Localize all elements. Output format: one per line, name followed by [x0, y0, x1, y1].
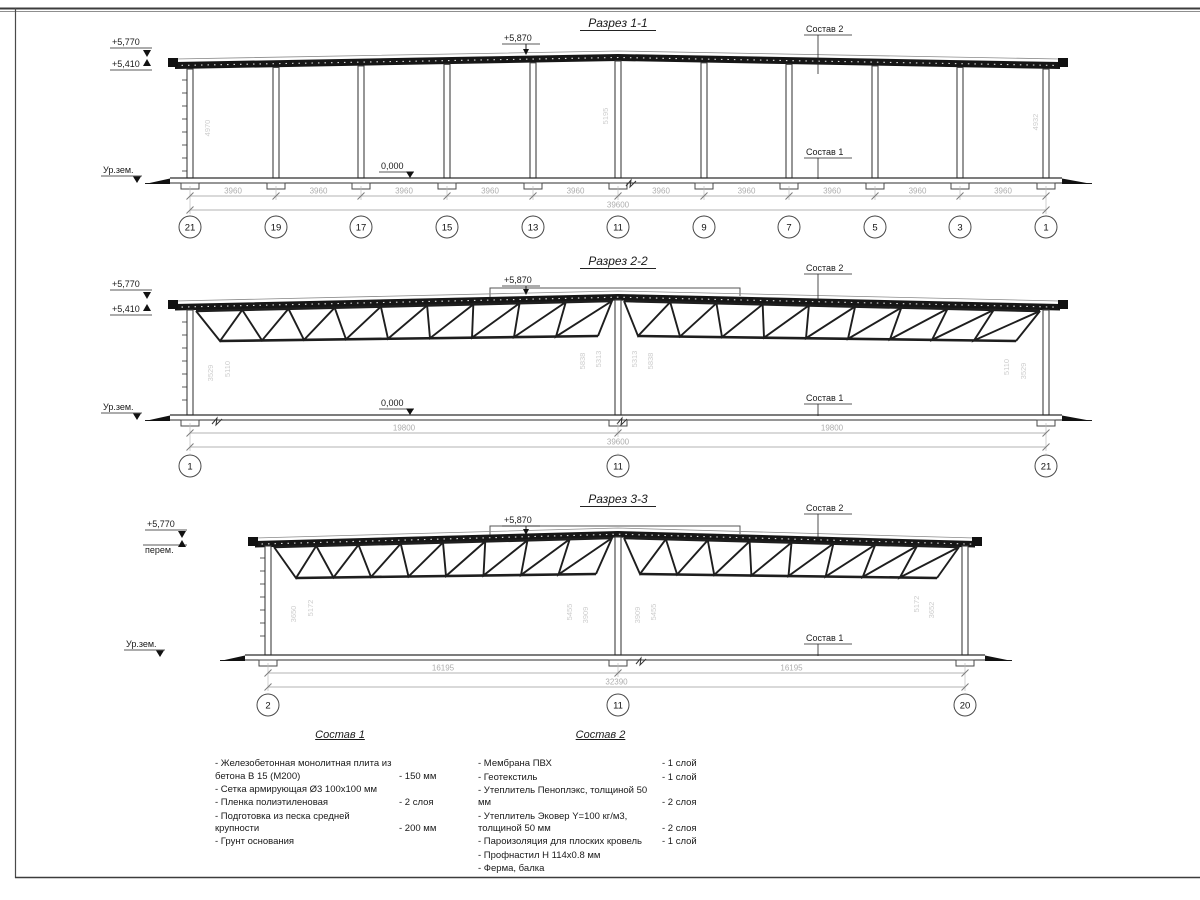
ground-level-label: Ур.зем. [103, 402, 134, 412]
section2-columns [187, 300, 1049, 415]
legend1-title: Состав 1 [250, 728, 430, 742]
legend-item: - Ферма, балка [478, 863, 723, 875]
axis-bubble-label: 11 [613, 462, 623, 473]
section3-footings [259, 660, 974, 666]
axis-bubble-label: 20 [960, 701, 971, 712]
elev-ridge-label: +5,870 [504, 515, 532, 525]
elev-note-label: перем. [145, 545, 174, 555]
height-dim: 5455 [649, 604, 658, 621]
bay-dimension: 3960 [909, 187, 927, 196]
bay-dimension: 3960 [738, 187, 756, 196]
legend-item: - Утеплитель Пеноплэкс, толщиной 50 мм -… [478, 785, 723, 810]
axis-bubble-label: 21 [185, 223, 196, 234]
section2-dimensions: 11121198001980039600 [179, 423, 1057, 477]
bay-dimension: 19800 [393, 424, 416, 433]
legend-item: - Пленка полиэтиленовая - 2 слоя [215, 797, 465, 809]
layer1-callout: Состав 1 [806, 393, 843, 403]
elev-top-label: +5,770 [147, 519, 175, 529]
section2-title: Разрез 2-2 [588, 254, 648, 268]
total-dimension: 32390 [605, 678, 628, 687]
elev-eave-label: +5,410 [112, 59, 140, 69]
axis-bubble-label: 17 [356, 223, 367, 234]
bay-dimension: 16195 [432, 664, 455, 673]
bay-dimension: 3960 [994, 187, 1012, 196]
legend-item: - Профнастил Н 114х0.8 мм [478, 850, 723, 862]
legend-item: - Подготовка из песка средней крупности … [215, 811, 465, 836]
axis-bubble-label: 19 [271, 223, 282, 234]
layer1-callout: Состав 1 [806, 633, 843, 643]
bay-dimension: 3960 [652, 187, 670, 196]
elev-top-label: +5,770 [112, 37, 140, 47]
legend-item: - Мембрана ПВХ - 1 слой [478, 758, 723, 770]
section1-dimensions: 2119171513119753139603960396039603960396… [179, 186, 1057, 238]
bay-dimension: 3960 [310, 187, 328, 196]
section1-wall-ticks [182, 80, 187, 171]
height-dim: 4932 [1031, 114, 1040, 131]
axis-bubble-label: 5 [872, 223, 877, 234]
zero-level-label: 0,000 [381, 398, 404, 408]
legend-sostav-1: Состав 1 - Железобетонная монолитная пли… [215, 728, 465, 850]
section1-columns [187, 61, 1049, 178]
ground-level-label: Ур.зем. [126, 639, 157, 649]
legend-item: - Сетка армирующая Ø3 100х100 мм [215, 784, 465, 796]
height-dim: 3652 [927, 602, 936, 619]
axis-bubble-label: 21 [1041, 462, 1052, 473]
bay-dimension: 19800 [821, 424, 844, 433]
legend-item: - Пароизоляция для плоских кровель - 1 с… [478, 836, 723, 848]
ground-level-label: Ур.зем. [103, 165, 134, 175]
axis-bubble-label: 9 [701, 223, 706, 234]
section3-callouts: Состав 2 Состав 1 [804, 503, 852, 656]
axis-bubble-label: 2 [265, 701, 270, 712]
height-dim: 3529 [206, 365, 215, 382]
height-dim: 5838 [646, 353, 655, 370]
elev-top-label: +5,770 [112, 279, 140, 289]
section-1-drawing: Разрез 1-1 [101, 16, 1092, 238]
section-2-drawing: Разрез 2-2 [101, 254, 1092, 477]
layer1-callout: Состав 1 [806, 147, 843, 157]
bay-dimension: 3960 [395, 187, 413, 196]
legend-sostav-2: Состав 2 - Мембрана ПВХ - 1 слой - Геоте… [478, 728, 723, 876]
section1-title: Разрез 1-1 [588, 16, 647, 30]
elev-eave-label: +5,410 [112, 304, 140, 314]
height-dim: 5313 [594, 351, 603, 368]
legend2-title: Состав 2 [511, 728, 691, 742]
section2-elevations: +5,770 +5,410 Ур.зем. 0,000 +5,870 [101, 275, 540, 420]
height-dim: 5172 [306, 600, 315, 617]
axis-bubble-label: 3 [957, 223, 962, 234]
height-dim: 3529 [1019, 363, 1028, 380]
total-dimension: 39600 [607, 201, 630, 210]
section1-elevations: +5,770 +5,410 Ур.зем. 0,000 +5,870 [101, 33, 540, 183]
section-3-drawing: Разрез 3-3 [124, 492, 1012, 716]
height-dim: 3650 [289, 606, 298, 623]
height-dim: 5172 [912, 596, 921, 613]
height-dim: 3909 [633, 607, 642, 624]
bay-dimension: 3960 [224, 187, 242, 196]
bay-dimension: 3960 [481, 187, 499, 196]
axis-bubble-label: 15 [442, 223, 453, 234]
height-dim: 5110 [1002, 359, 1011, 375]
layer2-callout: Состав 2 [806, 263, 843, 273]
section1-callouts: Состав 2 Состав 1 [804, 24, 852, 179]
axis-bubble-label: 7 [786, 223, 791, 234]
total-dimension: 39600 [607, 438, 630, 447]
section3-dimensions: 21120161951619532390 [257, 663, 976, 716]
legend-item: - Утеплитель Эковер Y=100 кг/м3, толщино… [478, 811, 723, 836]
axis-bubble-label: 1 [187, 462, 192, 473]
axis-bubble-label: 13 [528, 223, 539, 234]
layer2-callout: Состав 2 [806, 503, 843, 513]
height-dim: 5195 [601, 108, 610, 125]
height-dim: 5110 [223, 361, 232, 377]
section3-title: Разрез 3-3 [588, 492, 648, 506]
elev-ridge-label: +5,870 [504, 275, 532, 285]
section3-columns [265, 537, 968, 655]
legend-item: - Грунт основания [215, 836, 465, 848]
height-dim: 5313 [630, 351, 639, 368]
zero-level-label: 0,000 [381, 161, 404, 171]
axis-bubble-label: 11 [613, 223, 623, 234]
bay-dimension: 3960 [823, 187, 841, 196]
legend-item: - Железобетонная монолитная плита из бет… [215, 758, 465, 783]
height-dim: 3909 [581, 607, 590, 624]
height-dim: 4970 [203, 120, 212, 137]
bay-dimension: 3960 [567, 187, 585, 196]
axis-bubble-label: 11 [613, 701, 623, 712]
height-dim: 5455 [565, 604, 574, 621]
axis-bubble-label: 1 [1043, 223, 1048, 234]
legend-item: - Геотекстиль - 1 слой [478, 772, 723, 784]
height-dim: 5838 [578, 353, 587, 370]
elev-ridge-label: +5,870 [504, 33, 532, 43]
drawing-sheet: Разрез 1-1 [0, 0, 1200, 900]
layer2-callout: Состав 2 [806, 24, 843, 34]
bay-dimension: 16195 [780, 664, 803, 673]
